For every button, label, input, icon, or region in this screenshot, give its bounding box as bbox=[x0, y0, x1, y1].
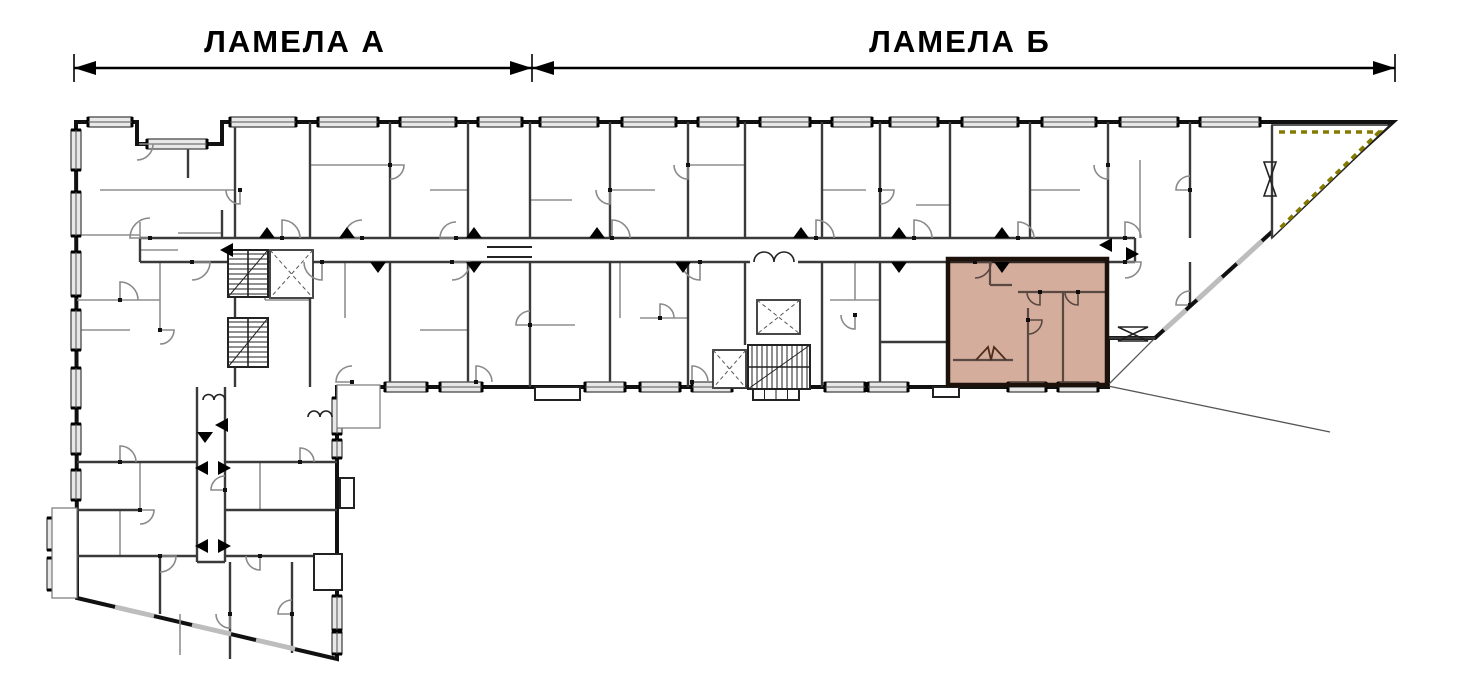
door-hinge-dot bbox=[814, 236, 818, 240]
building-outline bbox=[76, 122, 1393, 659]
door-hinge-dot bbox=[280, 236, 284, 240]
door-hinge-dot bbox=[148, 236, 152, 240]
lamela-b-label: ЛАМЕЛА Б bbox=[869, 24, 1051, 59]
door-hinge-dot bbox=[853, 313, 857, 317]
door-hinge-dot bbox=[290, 612, 294, 616]
door-hinge-dot bbox=[474, 380, 478, 384]
door-hinge-dot bbox=[454, 236, 458, 240]
porch bbox=[337, 385, 380, 428]
door-hinge-dot bbox=[360, 236, 364, 240]
door-hinge-dot bbox=[686, 163, 690, 167]
door-hinge-dot bbox=[190, 260, 194, 264]
door-hinge-dot bbox=[1188, 303, 1192, 307]
door-hinge-dot bbox=[158, 554, 162, 558]
door-hinge-dot bbox=[878, 188, 882, 192]
door-hinge-dot bbox=[135, 142, 139, 146]
porch bbox=[314, 554, 342, 590]
floor-plan-geometry bbox=[47, 117, 1393, 659]
dimension-arrow-right bbox=[1373, 61, 1395, 75]
canopy-line bbox=[1108, 338, 1155, 385]
door-hinge-dot bbox=[118, 460, 122, 464]
door-hinge-dot bbox=[528, 323, 532, 327]
porch bbox=[52, 508, 77, 598]
door-hinge-dot bbox=[1016, 236, 1020, 240]
door-hinge-dot bbox=[912, 236, 916, 240]
door-hinge-dot bbox=[690, 380, 694, 384]
door-hinge-dot bbox=[698, 260, 702, 264]
selected-apartment-highlight[interactable] bbox=[948, 259, 1107, 385]
door-hinge-dot bbox=[1106, 163, 1110, 167]
door-hinge-dot bbox=[608, 188, 612, 192]
door-hinge-dot bbox=[658, 316, 662, 320]
door-hinge-dot bbox=[298, 460, 302, 464]
dimension-arrow-right bbox=[510, 61, 532, 75]
door-hinge-dot bbox=[118, 298, 122, 302]
door-hinge-dot bbox=[388, 163, 392, 167]
porch bbox=[535, 387, 580, 400]
dimension-arrow-left bbox=[74, 61, 96, 75]
door-hinge-dot bbox=[238, 188, 242, 192]
door-hinge-dot bbox=[350, 380, 354, 384]
floor-plan-canvas: ЛАМЕЛА А ЛАМЕЛА Б bbox=[0, 0, 1476, 691]
door-hinge-dot bbox=[320, 260, 324, 264]
door-hinge-dot bbox=[138, 508, 142, 512]
dimension-arrow-left bbox=[532, 61, 554, 75]
door-hinge-dot bbox=[258, 554, 262, 558]
door-hinge-dot bbox=[228, 612, 232, 616]
door-hinge-dot bbox=[450, 260, 454, 264]
door-hinge-dot bbox=[1188, 188, 1192, 192]
door-hinge-dot bbox=[1123, 236, 1127, 240]
lamela-a-label: ЛАМЕЛА А bbox=[204, 24, 386, 59]
canopy-line bbox=[1108, 386, 1330, 432]
door-hinge-dot bbox=[610, 236, 614, 240]
porch bbox=[340, 478, 354, 508]
door-hinge-dot bbox=[158, 328, 162, 332]
porch bbox=[933, 387, 959, 397]
terrace-outline bbox=[1272, 125, 1390, 238]
door-hinge-dot bbox=[223, 488, 227, 492]
floor-plan-page: ЛАМЕЛА А ЛАМЕЛА Б bbox=[0, 0, 1476, 691]
